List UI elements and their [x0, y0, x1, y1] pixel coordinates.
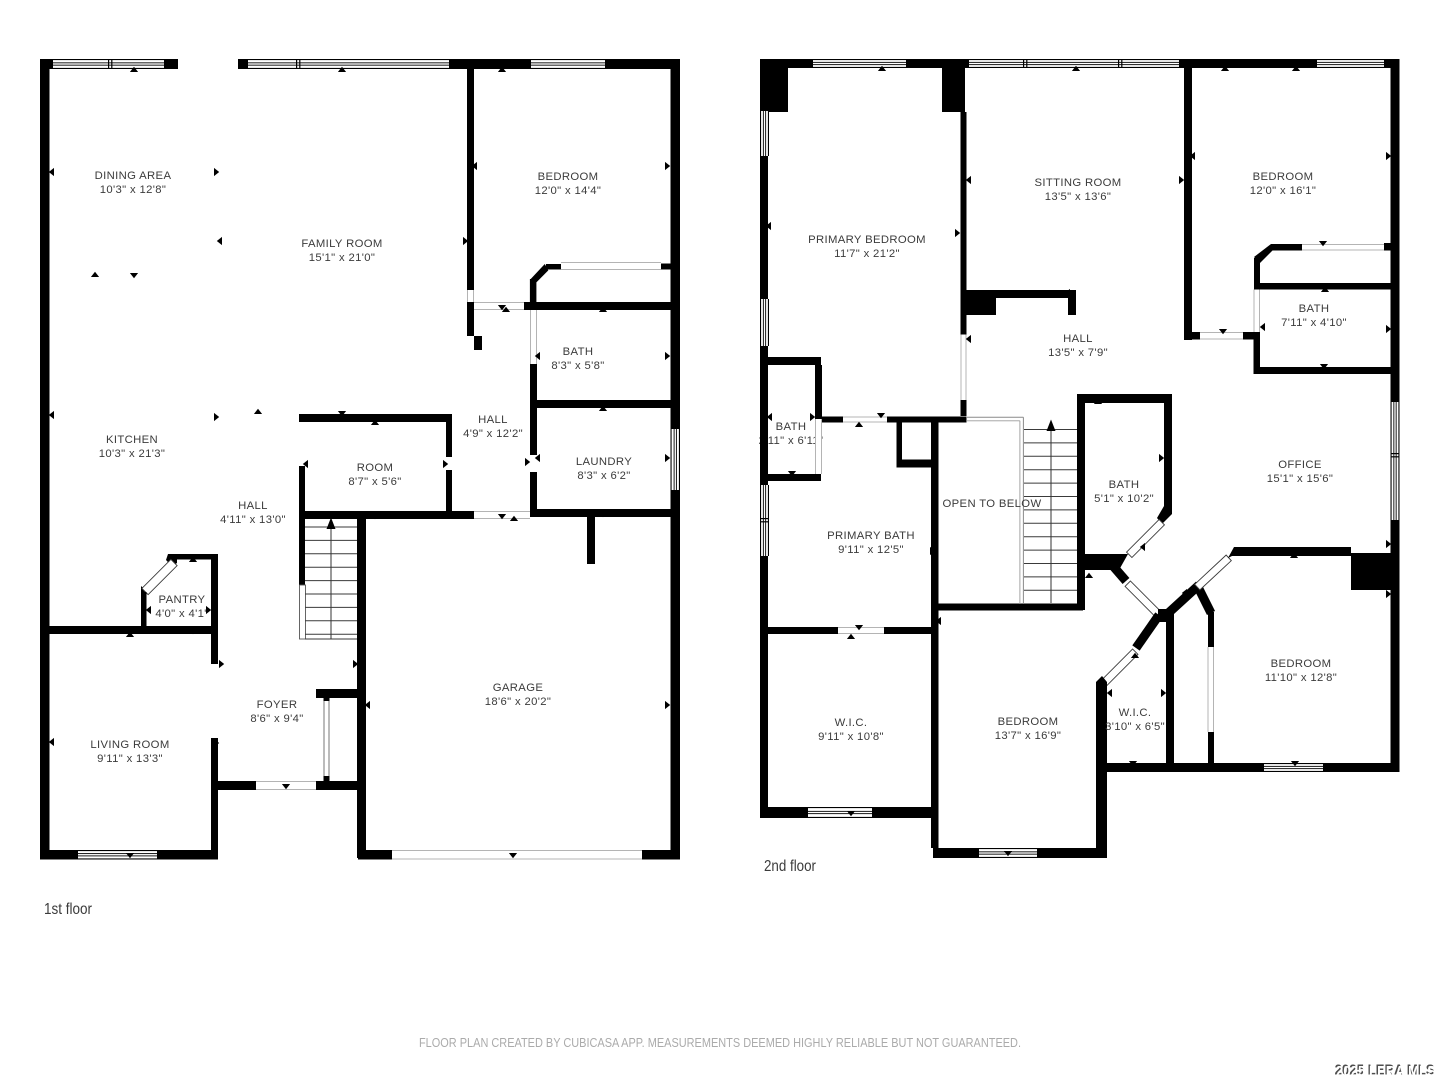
svg-text:13'5" x 7'9": 13'5" x 7'9"	[1048, 347, 1108, 359]
svg-text:PANTRY: PANTRY	[159, 594, 206, 606]
svg-text:OPEN TO BELOW: OPEN TO BELOW	[943, 498, 1042, 510]
svg-text:GARAGE: GARAGE	[493, 682, 544, 694]
svg-text:9'11" x 12'5": 9'11" x 12'5"	[838, 544, 904, 556]
svg-text:PRIMARY BEDROOM: PRIMARY BEDROOM	[808, 234, 926, 246]
svg-text:5'1" x 10'2": 5'1" x 10'2"	[1094, 493, 1154, 505]
svg-text:11'10" x 12'8": 11'10" x 12'8"	[1265, 672, 1337, 684]
svg-text:HALL: HALL	[478, 414, 508, 426]
svg-text:BATH: BATH	[1109, 479, 1140, 491]
svg-text:HALL: HALL	[1063, 333, 1093, 345]
svg-text:2025 LERA MLS: 2025 LERA MLS	[1336, 1064, 1436, 1080]
svg-text:11'7" x 21'2": 11'7" x 21'2"	[834, 248, 900, 260]
svg-text:3'10" x 6'5": 3'10" x 6'5"	[1105, 721, 1165, 733]
svg-text:13'5" x 13'6": 13'5" x 13'6"	[1045, 191, 1112, 203]
svg-text:LAUNDRY: LAUNDRY	[576, 456, 632, 468]
svg-text:1st floor: 1st floor	[44, 901, 92, 918]
svg-text:BATH: BATH	[776, 421, 807, 433]
svg-text:9'11" x 10'8": 9'11" x 10'8"	[818, 731, 884, 743]
svg-text:FOYER: FOYER	[257, 699, 298, 711]
svg-text:15'1" x 21'0": 15'1" x 21'0"	[309, 252, 376, 264]
svg-text:FLOOR PLAN CREATED BY CUBICASA: FLOOR PLAN CREATED BY CUBICASA APP. MEAS…	[419, 1036, 1021, 1050]
svg-text:4'9" x 12'2": 4'9" x 12'2"	[463, 428, 523, 440]
svg-text:BATH: BATH	[563, 346, 594, 358]
svg-text:PRIMARY BATH: PRIMARY BATH	[827, 530, 915, 542]
svg-text:10'3" x 12'8": 10'3" x 12'8"	[100, 184, 167, 196]
svg-text:OFFICE: OFFICE	[1278, 459, 1322, 471]
svg-text:18'6" x 20'2": 18'6" x 20'2"	[485, 696, 552, 708]
svg-text:HALL: HALL	[238, 500, 268, 512]
svg-text:W.I.C.: W.I.C.	[835, 717, 868, 729]
svg-text:BEDROOM: BEDROOM	[1271, 658, 1332, 670]
svg-text:LIVING ROOM: LIVING ROOM	[90, 739, 169, 751]
svg-text:SITTING ROOM: SITTING ROOM	[1034, 177, 1121, 189]
svg-text:4'0" x 4'1": 4'0" x 4'1"	[155, 608, 208, 620]
svg-text:7'11" x 4'10": 7'11" x 4'10"	[1281, 317, 1347, 329]
svg-text:12'0" x 14'4": 12'0" x 14'4"	[535, 185, 602, 197]
svg-text:2nd floor: 2nd floor	[764, 858, 816, 875]
svg-text:4'11" x 13'0": 4'11" x 13'0"	[220, 514, 286, 526]
svg-text:12'0" x 16'1": 12'0" x 16'1"	[1250, 185, 1317, 197]
svg-text:8'7" x 5'6": 8'7" x 5'6"	[348, 476, 401, 488]
svg-text:2'11" x 6'11": 2'11" x 6'11"	[759, 435, 824, 447]
svg-text:9'11" x 13'3": 9'11" x 13'3"	[97, 753, 163, 765]
svg-text:BEDROOM: BEDROOM	[538, 171, 599, 183]
svg-text:KITCHEN: KITCHEN	[106, 434, 158, 446]
svg-text:8'6" x 9'4": 8'6" x 9'4"	[250, 713, 303, 725]
svg-text:13'7" x 16'9": 13'7" x 16'9"	[995, 730, 1062, 742]
svg-text:15'1" x 15'6": 15'1" x 15'6"	[1267, 473, 1334, 485]
svg-text:8'3" x 6'2": 8'3" x 6'2"	[577, 470, 630, 482]
svg-text:ROOM: ROOM	[357, 462, 394, 474]
svg-text:BATH: BATH	[1299, 303, 1330, 315]
svg-text:DINING AREA: DINING AREA	[95, 170, 172, 182]
svg-text:FAMILY ROOM: FAMILY ROOM	[301, 238, 382, 250]
svg-text:BEDROOM: BEDROOM	[998, 716, 1059, 728]
svg-text:BEDROOM: BEDROOM	[1253, 171, 1314, 183]
svg-text:W.I.C.: W.I.C.	[1119, 707, 1152, 719]
svg-text:8'3" x 5'8": 8'3" x 5'8"	[551, 360, 604, 372]
svg-text:10'3" x 21'3": 10'3" x 21'3"	[99, 448, 166, 460]
